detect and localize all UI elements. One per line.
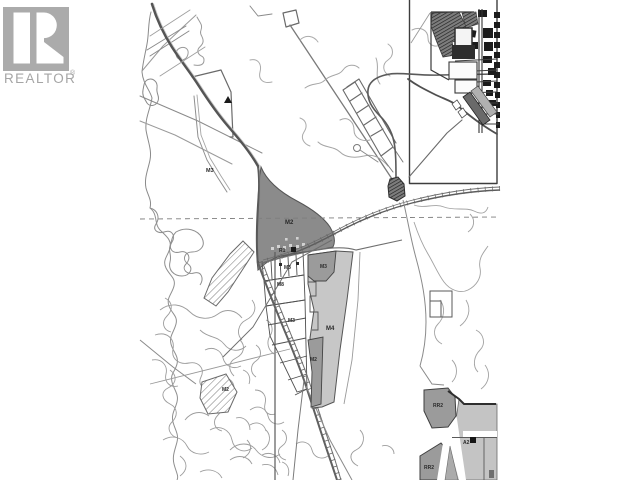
- svg-text:R1: R1: [279, 248, 286, 254]
- svg-text:M3: M3: [288, 318, 295, 324]
- svg-text:M3: M3: [284, 265, 291, 271]
- svg-text:M2: M2: [222, 387, 229, 393]
- svg-text:®: ®: [70, 69, 76, 77]
- svg-text:M8: M8: [277, 282, 284, 288]
- svg-text:RR2: RR2: [424, 465, 434, 471]
- svg-text:M4: M4: [326, 326, 335, 332]
- svg-text:RR2: RR2: [433, 403, 443, 409]
- svg-text:M2: M2: [285, 220, 294, 226]
- svg-text:M3: M3: [320, 264, 327, 270]
- svg-text:M2: M2: [310, 357, 317, 363]
- svg-text:REALTOR: REALTOR: [4, 71, 76, 86]
- svg-text:A2: A2: [463, 440, 470, 446]
- svg-text:M3: M3: [206, 168, 214, 174]
